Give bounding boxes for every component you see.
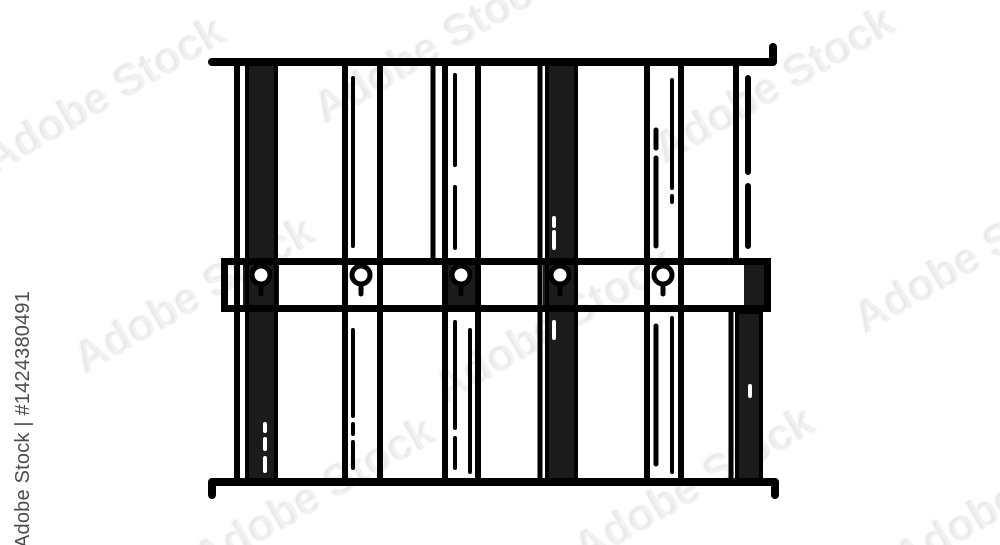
fence-illustration xyxy=(0,0,1000,545)
keyhole-icon xyxy=(654,266,672,294)
vertical-bars xyxy=(237,62,761,482)
shine-lines-white xyxy=(265,218,750,471)
keyholes xyxy=(252,266,672,294)
keyhole-icon xyxy=(352,266,370,294)
lock-band-border xyxy=(225,262,768,309)
top-rail xyxy=(212,47,773,62)
bottom-rail xyxy=(212,482,775,495)
stock-image-preview: Adobe Stock Adobe Stock Adobe Stock Adob… xyxy=(0,0,1000,545)
lock-band-plates xyxy=(243,260,770,310)
watermark-asset-id-label: Adobe Stock | #1424380491 xyxy=(12,291,35,545)
